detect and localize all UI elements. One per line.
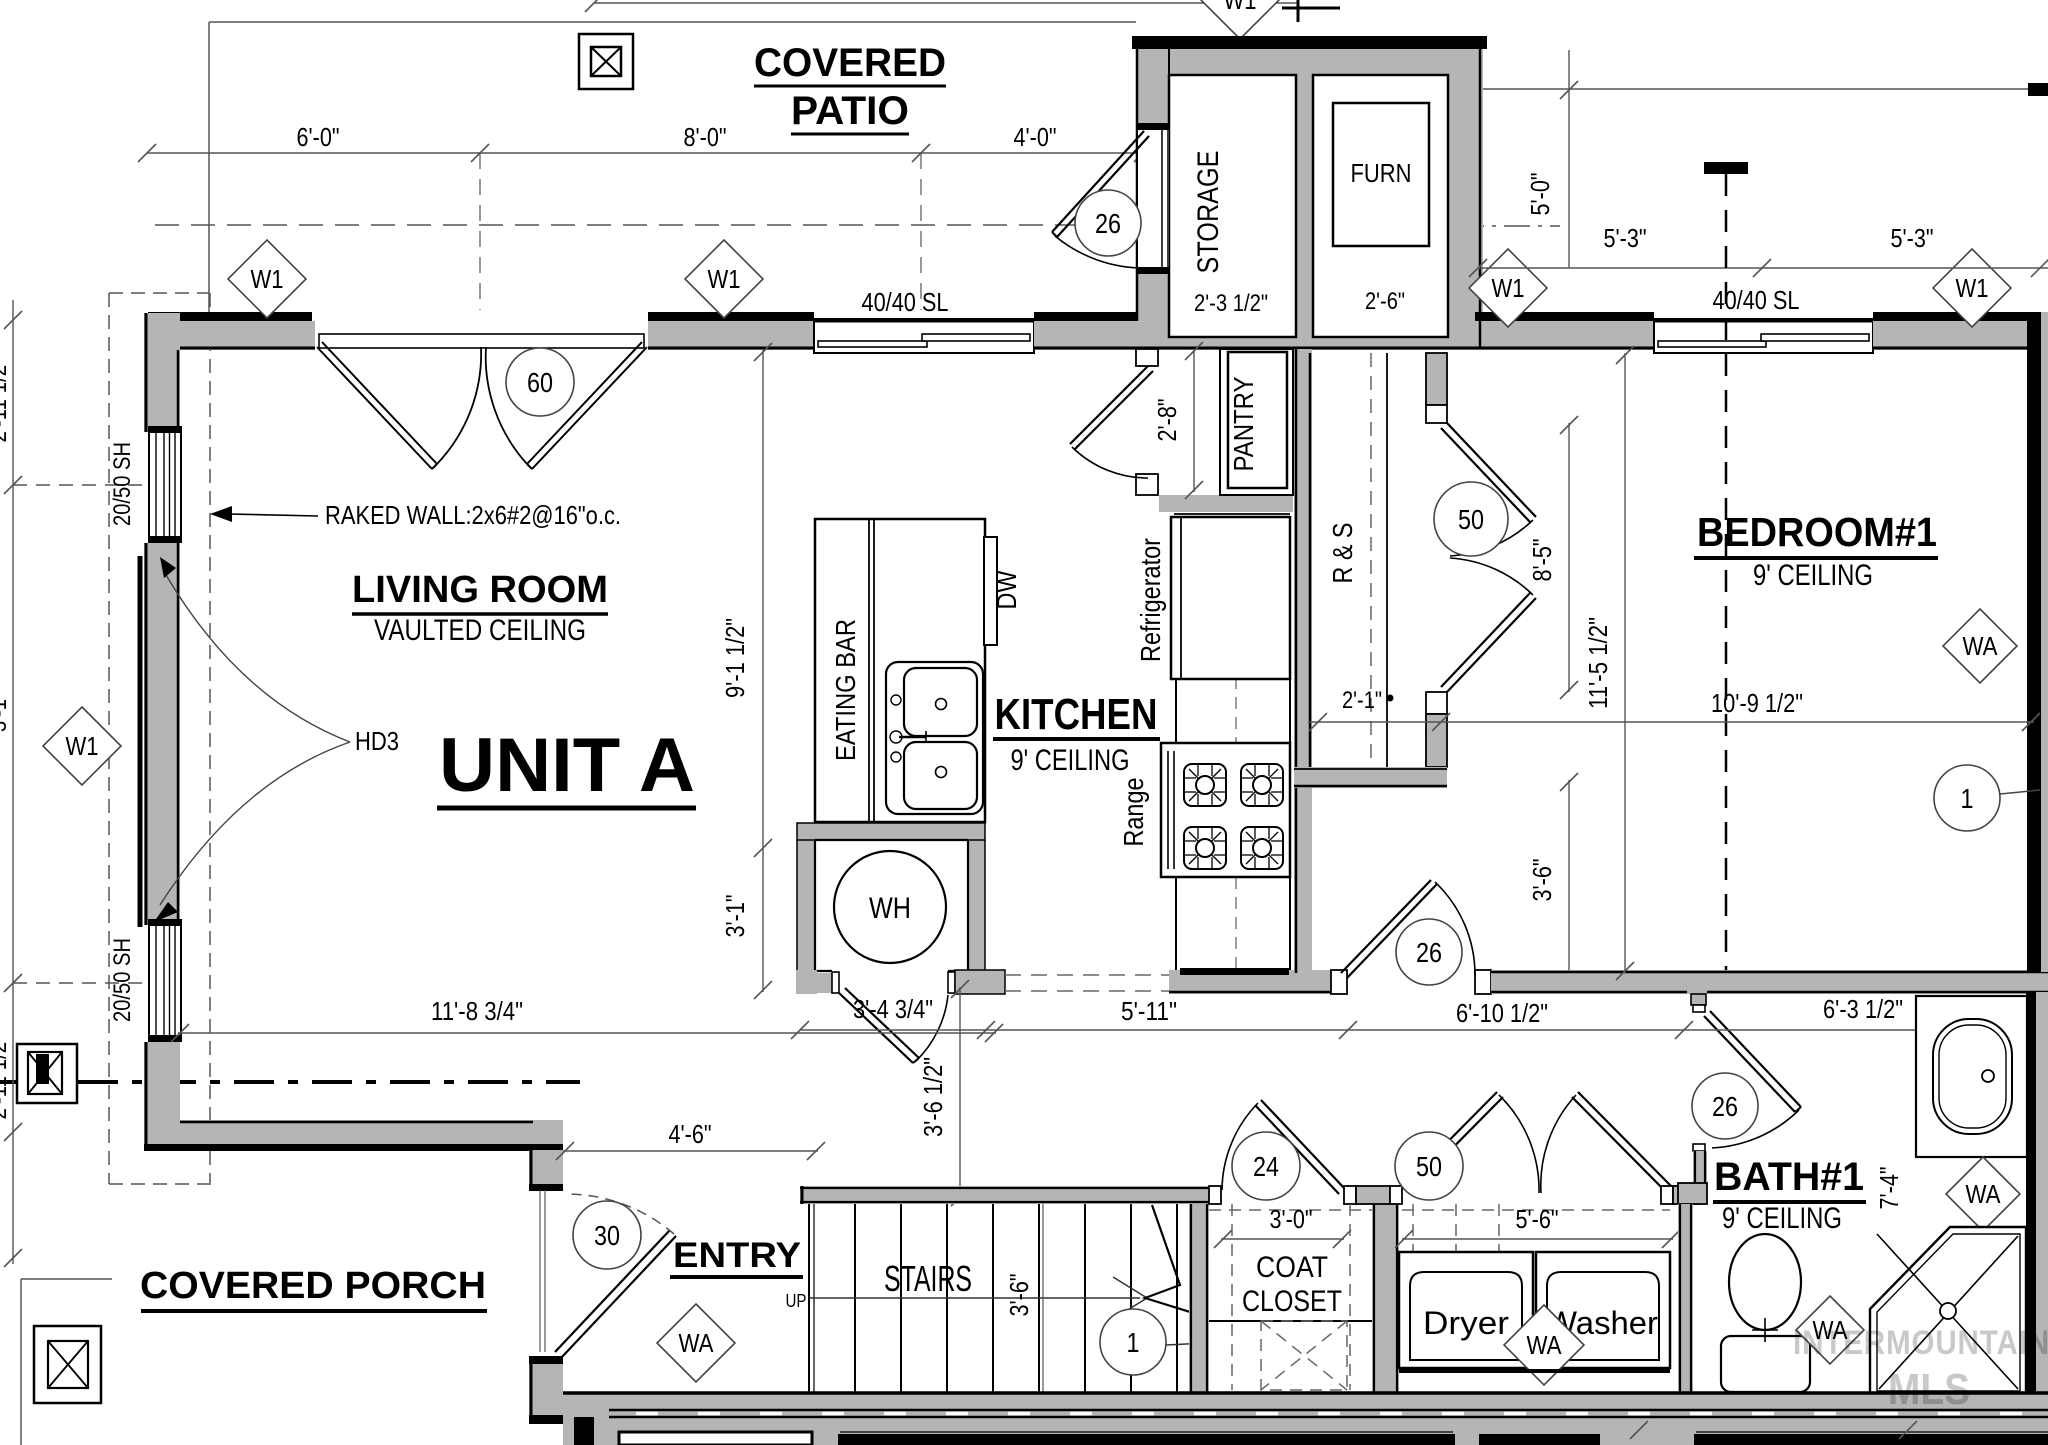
svg-text:ENTRY: ENTRY bbox=[673, 1236, 801, 1275]
svg-text:20/50 SH: 20/50 SH bbox=[109, 442, 136, 526]
svg-text:STORAGE: STORAGE bbox=[1192, 151, 1225, 274]
svg-text:9'-1 1/2": 9'-1 1/2" bbox=[720, 618, 750, 698]
svg-text:9' CEILING: 9' CEILING bbox=[1753, 559, 1873, 592]
svg-text:40/40 SL: 40/40 SL bbox=[862, 287, 949, 317]
svg-text:CLOSET: CLOSET bbox=[1242, 1285, 1342, 1318]
svg-text:11'-5 1/2": 11'-5 1/2" bbox=[1583, 617, 1613, 709]
svg-text:W1: W1 bbox=[708, 264, 741, 294]
svg-text:RAKED WALL:2x6#2@16"o.c.: RAKED WALL:2x6#2@16"o.c. bbox=[325, 500, 621, 530]
svg-text:MLS: MLS bbox=[1888, 1365, 1970, 1414]
svg-text:WA: WA bbox=[1527, 1330, 1563, 1360]
svg-text:INTERMOUNTAIN: INTERMOUNTAIN bbox=[1793, 1324, 2048, 1362]
svg-text:KITCHEN: KITCHEN bbox=[995, 690, 1158, 739]
svg-text:Dryer: Dryer bbox=[1423, 1305, 1509, 1341]
svg-text:W1: W1 bbox=[251, 264, 284, 294]
svg-text:4'-6": 4'-6" bbox=[669, 1119, 712, 1149]
svg-text:3'-6": 3'-6" bbox=[1004, 1274, 1034, 1317]
svg-text:6'-10 1/2": 6'-10 1/2" bbox=[1456, 998, 1548, 1028]
svg-text:2'-3 1/2": 2'-3 1/2" bbox=[1194, 290, 1268, 317]
svg-text:50: 50 bbox=[1458, 504, 1484, 535]
svg-text:Refrigerator: Refrigerator bbox=[1135, 538, 1166, 662]
svg-text:6'-0": 6'-0" bbox=[297, 122, 340, 152]
svg-text:9' CEILING: 9' CEILING bbox=[1722, 1202, 1842, 1235]
svg-text:5'-3": 5'-3" bbox=[1891, 223, 1934, 253]
svg-text:UNIT A: UNIT A bbox=[439, 723, 695, 808]
svg-text:FURN: FURN bbox=[1351, 158, 1412, 188]
svg-text:3'-1": 3'-1" bbox=[0, 692, 12, 732]
svg-text:EATING BAR: EATING BAR bbox=[830, 619, 861, 761]
svg-text:11'-8 3/4": 11'-8 3/4" bbox=[431, 996, 523, 1026]
svg-text:3'-6 1/2": 3'-6 1/2" bbox=[918, 1057, 948, 1137]
svg-text:5'-11": 5'-11" bbox=[1121, 996, 1177, 1026]
svg-text:WA: WA bbox=[1966, 1179, 2002, 1209]
svg-text:R & S: R & S bbox=[1327, 523, 1358, 584]
svg-text:5'-3": 5'-3" bbox=[1604, 223, 1647, 253]
svg-text:1: 1 bbox=[1961, 783, 1974, 814]
svg-text:26: 26 bbox=[1416, 937, 1442, 968]
svg-text:LIVING ROOM: LIVING ROOM bbox=[352, 569, 608, 611]
svg-text:20/50 SH: 20/50 SH bbox=[109, 938, 136, 1022]
svg-text:BATH#1: BATH#1 bbox=[1714, 1155, 1864, 1199]
svg-text:WA: WA bbox=[1963, 631, 1999, 661]
svg-text:5'-0": 5'-0" bbox=[1525, 173, 1555, 216]
svg-text:WA: WA bbox=[679, 1328, 715, 1358]
svg-text:PANTRY: PANTRY bbox=[1228, 376, 1259, 471]
svg-text:WH: WH bbox=[869, 892, 911, 925]
svg-text:4'-0": 4'-0" bbox=[1014, 122, 1057, 152]
svg-text:7'-4": 7'-4" bbox=[1874, 1167, 1904, 1210]
svg-text:VAULTED CEILING: VAULTED CEILING bbox=[374, 614, 586, 647]
svg-text:50: 50 bbox=[1416, 1151, 1442, 1182]
svg-text:1: 1 bbox=[1127, 1327, 1140, 1358]
svg-text:26: 26 bbox=[1095, 208, 1121, 239]
svg-text:COAT: COAT bbox=[1256, 1251, 1328, 1284]
svg-text:UP: UP bbox=[786, 1291, 807, 1311]
svg-text:BEDROOM#1: BEDROOM#1 bbox=[1697, 509, 1937, 555]
svg-text:2'-8": 2'-8" bbox=[1152, 399, 1182, 442]
svg-text:6'-3 1/2": 6'-3 1/2" bbox=[1823, 994, 1903, 1024]
svg-text:HD3: HD3 bbox=[355, 726, 399, 756]
svg-text:24: 24 bbox=[1253, 1151, 1279, 1182]
svg-text:COVERED PORCH: COVERED PORCH bbox=[140, 1265, 486, 1307]
svg-text:30: 30 bbox=[594, 1220, 620, 1251]
svg-text:2'-11 1/2": 2'-11 1/2" bbox=[0, 358, 12, 443]
svg-text:DW: DW bbox=[991, 570, 1022, 609]
svg-text:3'-1": 3'-1" bbox=[720, 895, 750, 938]
svg-text:8'-5": 8'-5" bbox=[1527, 539, 1557, 582]
svg-text:3'-0": 3'-0" bbox=[1270, 1204, 1313, 1234]
svg-text:5'-6": 5'-6" bbox=[1516, 1204, 1559, 1234]
svg-text:W1: W1 bbox=[1224, 0, 1257, 15]
svg-text:W1: W1 bbox=[1492, 273, 1525, 303]
svg-text:10'-9 1/2": 10'-9 1/2" bbox=[1711, 688, 1803, 718]
svg-text:2'-1": 2'-1" bbox=[1342, 687, 1382, 714]
svg-text:PATIO: PATIO bbox=[791, 89, 909, 133]
svg-text:COVERED: COVERED bbox=[754, 41, 946, 85]
svg-text:3'-4 3/4": 3'-4 3/4" bbox=[853, 994, 933, 1024]
svg-text:2'-6": 2'-6" bbox=[1365, 288, 1405, 315]
svg-text:W1: W1 bbox=[1956, 273, 1989, 303]
svg-text:3'-6": 3'-6" bbox=[1527, 859, 1557, 902]
svg-text:60: 60 bbox=[527, 367, 553, 398]
svg-text:9' CEILING: 9' CEILING bbox=[1011, 744, 1130, 777]
svg-text:W1: W1 bbox=[66, 731, 99, 761]
svg-text:Range: Range bbox=[1118, 778, 1149, 847]
svg-text:8'-0": 8'-0" bbox=[684, 122, 727, 152]
svg-text:STAIRS: STAIRS bbox=[884, 1258, 972, 1299]
svg-text:26: 26 bbox=[1712, 1091, 1738, 1122]
svg-text:2'-11 1/2": 2'-11 1/2" bbox=[0, 1035, 12, 1120]
